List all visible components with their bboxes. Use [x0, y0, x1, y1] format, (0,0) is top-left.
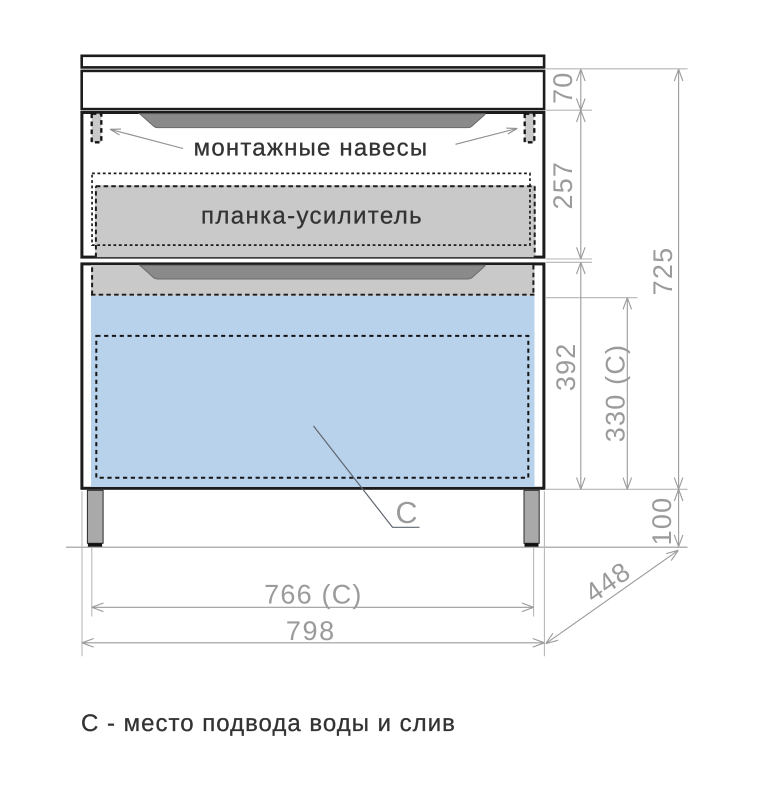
svg-text:330 (C): 330 (C) — [600, 344, 630, 442]
svg-text:C - место подвода воды и слив: C - место подвода воды и слив — [81, 710, 456, 737]
svg-text:257: 257 — [548, 161, 578, 210]
svg-text:766 (C): 766 (C) — [264, 579, 362, 609]
svg-text:планка-усилитель: планка-усилитель — [201, 203, 423, 230]
svg-text:798: 798 — [286, 616, 336, 646]
svg-text:100: 100 — [647, 497, 677, 546]
svg-text:монтажные навесы: монтажные навесы — [194, 135, 429, 162]
svg-text:C: C — [395, 496, 417, 530]
svg-text:392: 392 — [551, 342, 581, 391]
svg-text:725: 725 — [648, 247, 678, 296]
svg-text:70: 70 — [548, 71, 578, 103]
svg-text:448: 448 — [579, 556, 636, 609]
